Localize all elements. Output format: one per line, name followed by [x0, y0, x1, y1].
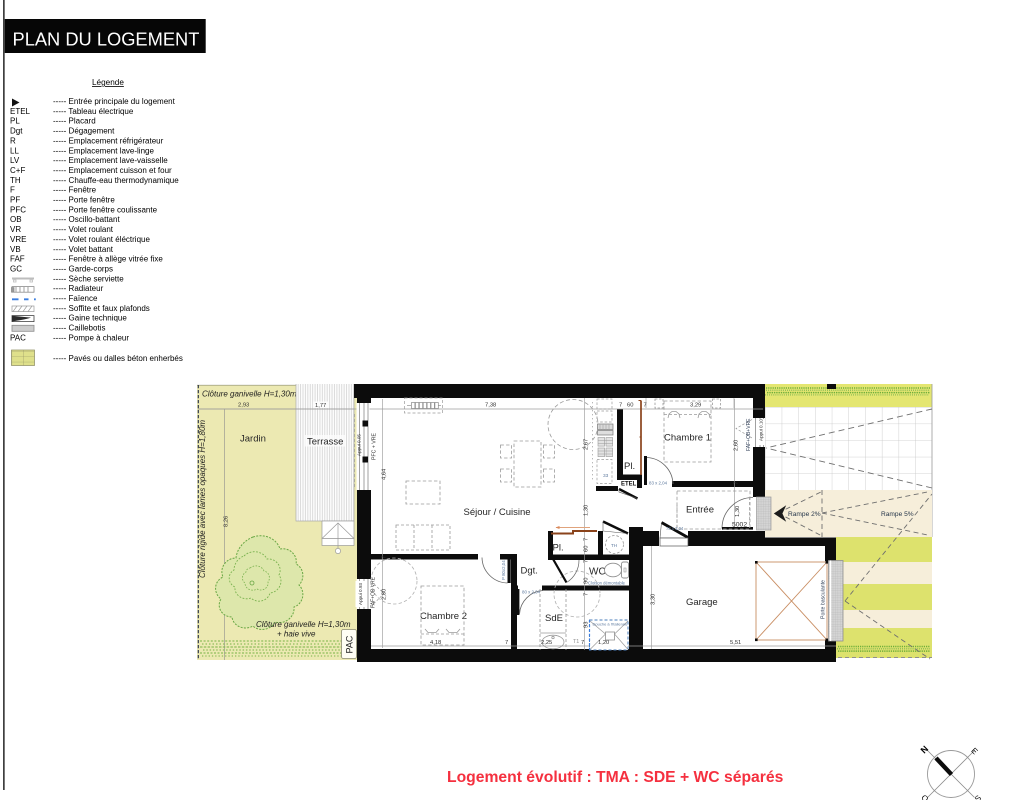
svg-text:1,20: 1,20	[598, 640, 609, 646]
svg-text:----- Tableau électrique: ----- Tableau électrique	[53, 107, 134, 116]
svg-text:----- Volet roulant éléctrique: ----- Volet roulant éléctrique	[53, 235, 150, 244]
svg-text:2,25: 2,25	[541, 640, 552, 646]
svg-text:SdE: SdE	[545, 613, 563, 624]
svg-text:----- Oscillo-battant: ----- Oscillo-battant	[53, 215, 120, 224]
svg-text:Clôture rigide avec lames opaq: Clôture rigide avec lames opaques H=1,80…	[198, 420, 207, 578]
svg-text:7: 7	[734, 481, 740, 484]
svg-text:Terrasse: Terrasse	[307, 437, 343, 448]
svg-text:F: F	[10, 186, 15, 195]
svg-text:VRE: VRE	[10, 235, 26, 244]
svg-text:----- Fenêtre: ----- Fenêtre	[53, 186, 97, 195]
svg-text:7,38: 7,38	[485, 403, 496, 409]
svg-text:FAF: FAF	[10, 255, 25, 264]
svg-text:Jardin: Jardin	[240, 434, 266, 445]
svg-text:Séjour / Cuisine: Séjour / Cuisine	[464, 507, 531, 518]
svg-text:Garage: Garage	[686, 597, 718, 608]
svg-text:Clôture ganivelle H=1,30m: Clôture ganivelle H=1,30m	[256, 620, 351, 629]
svg-text:Appui 0.10: Appui 0.10	[759, 419, 764, 441]
svg-text:Dgt.: Dgt.	[521, 566, 538, 577]
svg-text:PFC: PFC	[10, 205, 26, 214]
svg-text:----- Emplacement réfrigérateu: ----- Emplacement réfrigérateur	[53, 136, 164, 145]
svg-text:2,60: 2,60	[734, 440, 740, 451]
svg-text:Douche à l'italienne: Douche à l'italienne	[593, 622, 629, 627]
svg-text:PAC: PAC	[10, 333, 26, 342]
svg-text:VB: VB	[10, 245, 21, 254]
svg-text:C+F: C+F	[10, 166, 25, 175]
svg-text:----- Gaine technique: ----- Gaine technique	[53, 314, 127, 323]
svg-text:Appui 0.93: Appui 0.93	[358, 583, 363, 605]
svg-text:LV: LV	[10, 156, 20, 165]
svg-text:ETEL: ETEL	[621, 482, 637, 488]
svg-text:Rampe 2%: Rampe 2%	[788, 511, 821, 518]
svg-text:----- Fenêtre à allège vitrée: ----- Fenêtre à allège vitrée fixe	[53, 255, 163, 264]
svg-text:FAF+OB+VRE: FAF+OB+VRE	[746, 418, 752, 451]
svg-text:Cloison démontable: Cloison démontable	[588, 581, 626, 586]
svg-text:93: 93	[584, 622, 590, 628]
svg-text:----- Caillebotis: ----- Caillebotis	[53, 324, 105, 333]
svg-text:7: 7	[584, 538, 590, 541]
svg-text:VR: VR	[10, 225, 21, 234]
svg-text:7: 7	[584, 593, 590, 596]
svg-text:80 x 2,04: 80 x 2,04	[522, 590, 541, 595]
svg-text:4,64: 4,64	[382, 468, 388, 480]
svg-text:3,29: 3,29	[690, 403, 701, 409]
svg-text:PL: PL	[10, 117, 20, 126]
svg-text:----- Emplacement lave-vaisse: ----- Emplacement lave-vaisselle	[53, 156, 168, 165]
svg-text:7: 7	[505, 640, 508, 646]
svg-text:----- Volet roulant: ----- Volet roulant	[53, 225, 114, 234]
svg-text:5002: 5002	[732, 522, 747, 529]
svg-text:PFC + VRE: PFC + VRE	[372, 433, 378, 460]
svg-text:----- Faïence: ----- Faïence	[53, 294, 98, 303]
svg-text:WC: WC	[589, 567, 606, 578]
svg-text:Pl.: Pl.	[624, 461, 635, 472]
svg-text:4,18: 4,18	[430, 640, 441, 646]
svg-text:+ haie vive: + haie vive	[277, 630, 316, 639]
svg-text:PLAN DU LOGEMENT: PLAN DU LOGEMENT	[13, 29, 200, 50]
svg-text:----- Porte fenêtre coulissant: ----- Porte fenêtre coulissante	[53, 205, 158, 214]
svg-text:1,30: 1,30	[735, 506, 741, 517]
svg-text:33: 33	[603, 473, 609, 479]
svg-text:2,93: 2,93	[238, 403, 249, 409]
svg-text:73 x 2,04: 73 x 2,04	[666, 526, 684, 531]
svg-text:Légende: Légende	[92, 78, 124, 87]
svg-text:----- Emplacement lave-linge: ----- Emplacement lave-linge	[53, 146, 154, 155]
svg-text:T1: T1	[573, 639, 579, 645]
svg-text:Dgt: Dgt	[10, 127, 23, 136]
svg-text:Entrée: Entrée	[686, 505, 714, 516]
svg-text:----- Entrée principale du log: ----- Entrée principale du logement	[53, 97, 176, 106]
svg-text:----- Porte fenêtre: ----- Porte fenêtre	[53, 196, 115, 205]
svg-text:P 80x2,04: P 80x2,04	[501, 560, 506, 580]
svg-text:1,30: 1,30	[584, 505, 590, 516]
svg-text:Logement évolutif : TMA : SDE: Logement évolutif : TMA : SDE + WC sépar…	[447, 769, 784, 786]
svg-text:----- Emplacement cuisson et f: ----- Emplacement cuisson et four	[53, 166, 172, 175]
svg-text:----- Sèche serviette: ----- Sèche serviette	[53, 274, 124, 283]
svg-text:OB: OB	[10, 215, 22, 224]
svg-text:Chambre 2: Chambre 2	[420, 611, 467, 622]
svg-text:7: 7	[644, 403, 647, 409]
svg-text:7: 7	[581, 640, 584, 646]
svg-text:LL: LL	[10, 146, 19, 155]
svg-text:2,80: 2,80	[382, 589, 388, 600]
svg-text:7: 7	[619, 403, 622, 409]
svg-text:Pl.: Pl.	[553, 543, 564, 554]
svg-text:8,26: 8,26	[224, 516, 230, 527]
svg-text:----- Dégagement: ----- Dégagement	[53, 127, 115, 136]
svg-text:Rampe 5%: Rampe 5%	[881, 511, 914, 518]
svg-text:Chambre 1: Chambre 1	[664, 433, 711, 444]
svg-text:----- Radiateur: ----- Radiateur	[53, 284, 104, 293]
svg-text:5,51: 5,51	[730, 640, 741, 646]
svg-text:----- Pavés ou dalles béton en: ----- Pavés ou dalles béton enherbés	[53, 354, 183, 363]
svg-text:Clôture ganivelle H=1,30m: Clôture ganivelle H=1,30m	[202, 390, 297, 399]
svg-text:PF: PF	[10, 196, 20, 205]
svg-text:R: R	[10, 136, 16, 145]
svg-text:----- Chauffe-eau thermodynami: ----- Chauffe-eau thermodynamique	[53, 176, 179, 185]
svg-text:60: 60	[627, 403, 633, 409]
svg-text:----- Soffite et faux plafonds: ----- Soffite et faux plafonds	[53, 304, 150, 313]
svg-text:Appui 0.05: Appui 0.05	[357, 434, 362, 456]
svg-text:----- Pompe à chaleur: ----- Pompe à chaleur	[53, 333, 129, 342]
svg-text:90: 90	[584, 578, 590, 584]
svg-text:PAC: PAC	[345, 635, 355, 653]
svg-text:GC: GC	[10, 265, 22, 274]
svg-text:----- Garde-corps: ----- Garde-corps	[53, 265, 113, 274]
svg-text:7: 7	[584, 560, 590, 563]
svg-text:TH: TH	[10, 176, 21, 185]
svg-text:----- Volet battant: ----- Volet battant	[53, 245, 114, 254]
svg-text:83 x 2,04: 83 x 2,04	[649, 481, 668, 486]
svg-text:ETEL: ETEL	[10, 107, 31, 116]
svg-text:2,67: 2,67	[584, 439, 590, 450]
svg-text:60: 60	[584, 546, 590, 552]
svg-text:3,30: 3,30	[651, 594, 657, 605]
svg-text:7: 7	[382, 556, 388, 559]
svg-text:Porte basculante: Porte basculante	[821, 580, 827, 619]
svg-text:----- Placard: ----- Placard	[53, 117, 96, 126]
svg-text:1,77: 1,77	[315, 403, 326, 409]
svg-text:TH: TH	[611, 543, 617, 548]
